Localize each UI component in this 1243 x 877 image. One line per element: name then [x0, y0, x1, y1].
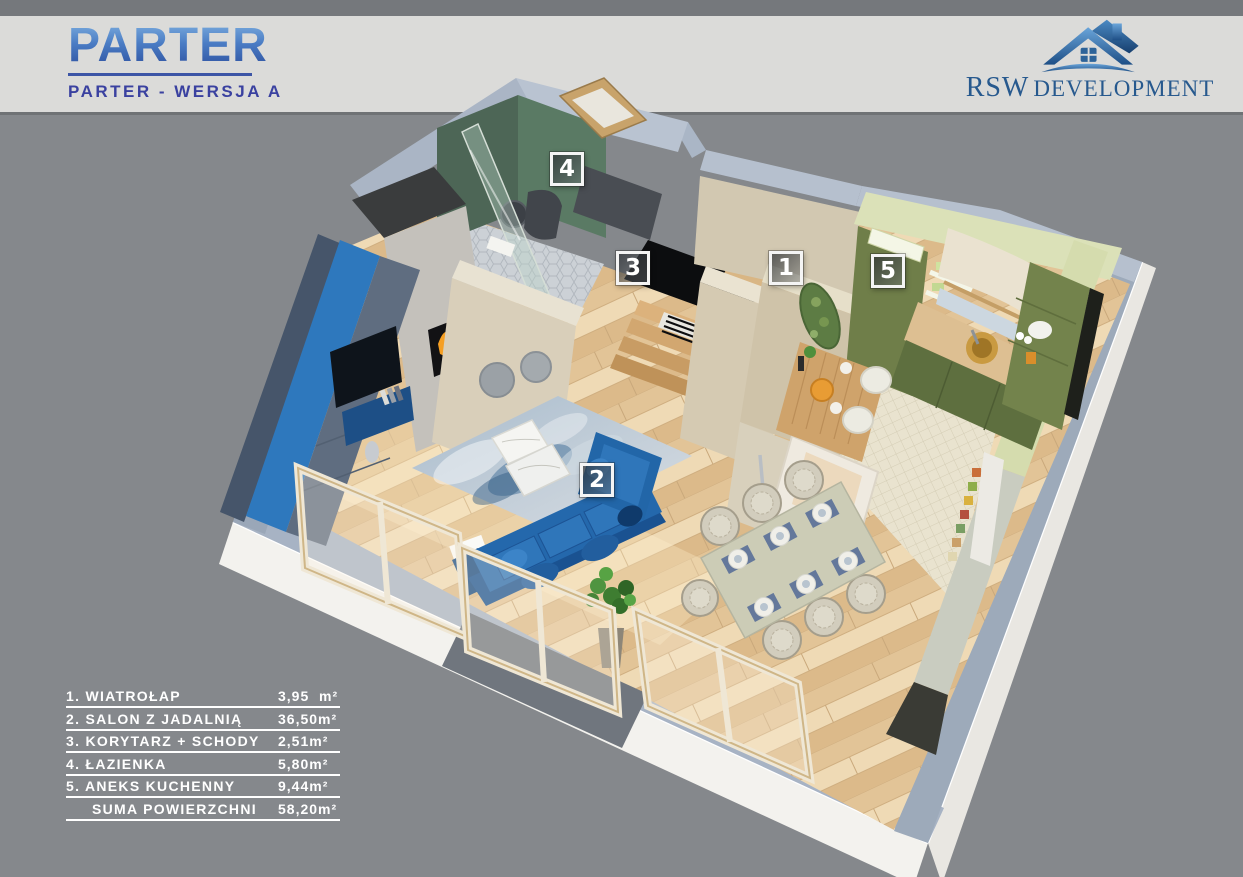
pantry-jar	[964, 496, 973, 505]
legend-room-label: 4. ŁAZIENKA	[66, 757, 278, 771]
plate	[840, 362, 852, 374]
legend-total-label: SUMA POWIERZCHNI	[66, 802, 278, 816]
wine-bottle	[798, 356, 804, 371]
wreath-leaf	[811, 297, 821, 307]
pantry-jar	[968, 482, 977, 491]
dining-chair	[682, 580, 718, 616]
page: PARTER PARTER - WERSJA A RSW DEVELOPMENT	[0, 0, 1243, 877]
pizza	[811, 379, 833, 401]
legend-room-area: 36,50m²	[278, 712, 337, 726]
legend-room-label: 3. KORYTARZ + SCHODY	[66, 734, 278, 748]
dining-chair	[785, 461, 823, 499]
dining-chair	[847, 575, 885, 613]
legend-room-label: 1. WIATROŁAP	[66, 689, 278, 703]
vase	[365, 441, 379, 463]
legend-room-area: 2,51m²	[278, 734, 328, 748]
legend-room-area: 9,44m²	[278, 779, 328, 793]
pouf	[480, 363, 514, 397]
dining-chair	[763, 621, 801, 659]
egg	[1024, 336, 1032, 344]
room-marker-1: 1	[769, 251, 803, 285]
pantry-jar	[948, 552, 957, 561]
white-chair	[861, 367, 891, 393]
legend-room-area: 3,95 m²	[278, 689, 338, 703]
white-chair	[843, 407, 873, 433]
legend-room-label: 5. ANEKS KUCHENNY	[66, 779, 278, 793]
dining-chair	[805, 598, 843, 636]
gold-sink-basin	[972, 338, 992, 358]
pantry-jar	[952, 538, 961, 547]
area-legend: 1. WIATROŁAP 3,95 m² 2. SALON Z JADALNIĄ…	[66, 689, 340, 824]
egg	[1016, 332, 1024, 340]
table-plant	[804, 346, 816, 358]
pantry-jar	[960, 510, 969, 519]
legend-total-row: SUMA POWIERZCHNI 58,20m²	[66, 802, 340, 821]
room-marker-4: 4	[550, 152, 584, 186]
pouf	[521, 352, 551, 382]
wreath-leaf	[810, 330, 818, 338]
amber-glass	[1026, 352, 1036, 364]
legend-row: 3. KORYTARZ + SCHODY 2,51m²	[66, 734, 340, 753]
plate	[830, 402, 842, 414]
room-marker-5: 5	[871, 254, 905, 288]
legend-room-area: 5,80m²	[278, 757, 328, 771]
dining-chair	[701, 507, 739, 545]
kettle	[1028, 321, 1052, 339]
toilet	[524, 190, 562, 240]
legend-room-label: 2. SALON Z JADALNIĄ	[66, 712, 278, 726]
room-marker-3: 3	[616, 251, 650, 285]
wreath-leaf	[819, 317, 829, 327]
dining-chair	[743, 484, 781, 522]
pantry-jar	[956, 524, 965, 533]
room-marker-2: 2	[580, 463, 614, 497]
legend-row: 4. ŁAZIENKA 5,80m²	[66, 757, 340, 776]
legend-row: 5. ANEKS KUCHENNY 9,44m²	[66, 779, 340, 798]
legend-row: 1. WIATROŁAP 3,95 m²	[66, 689, 340, 708]
legend-row: 2. SALON Z JADALNIĄ 36,50m²	[66, 712, 340, 731]
pantry-jar	[972, 468, 981, 477]
legend-total-area: 58,20m²	[278, 802, 337, 816]
